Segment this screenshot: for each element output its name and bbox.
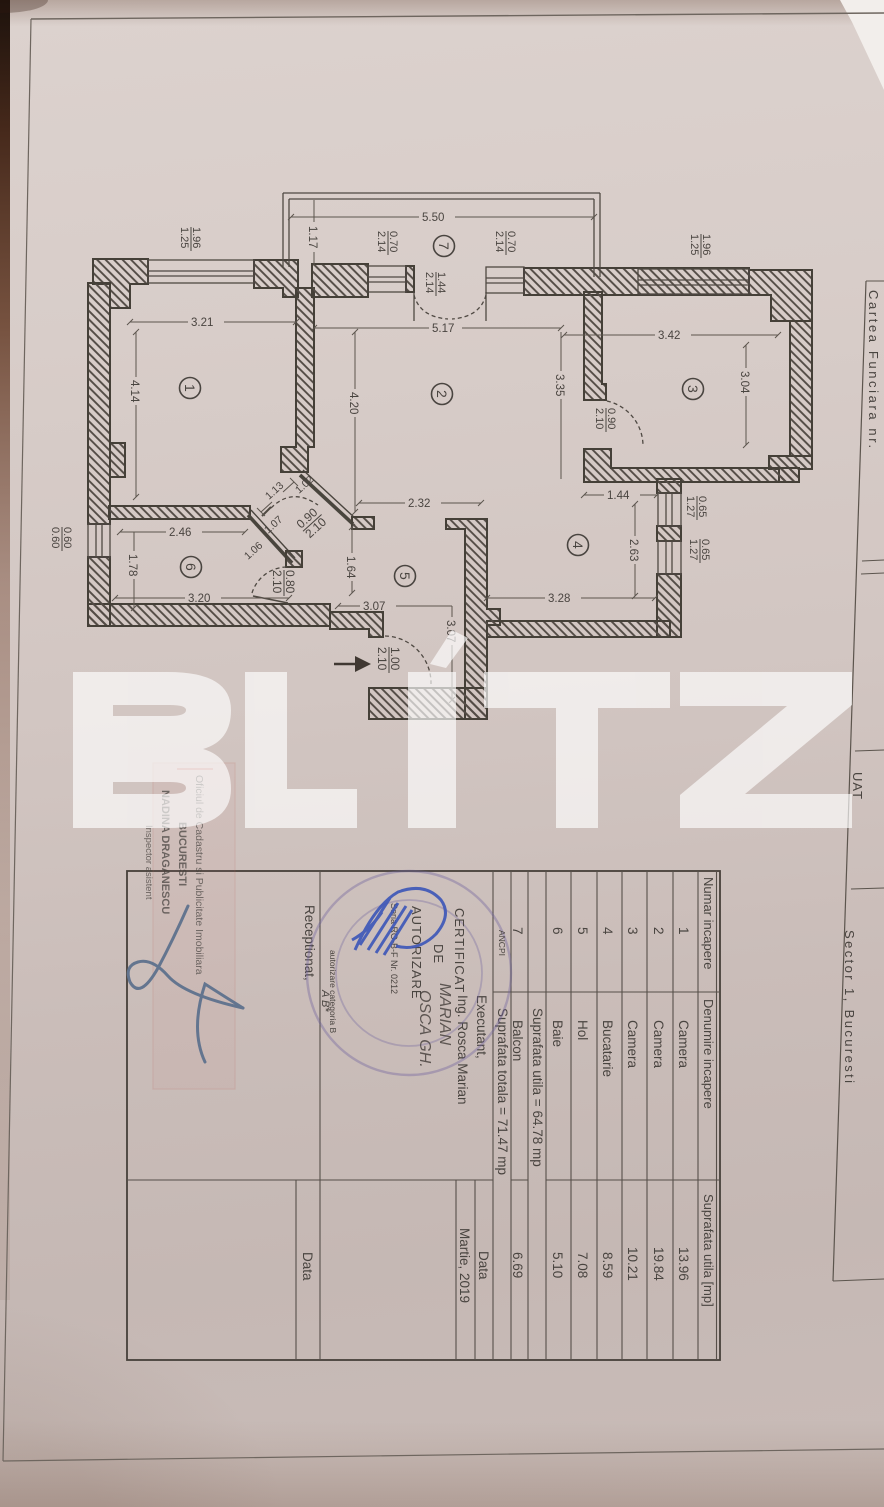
svg-text:Suprafata utila [mp]: Suprafata utila [mp] bbox=[701, 1194, 716, 1307]
svg-text:3.35: 3.35 bbox=[553, 374, 565, 396]
svg-text:0.70: 0.70 bbox=[505, 231, 517, 252]
svg-text:Bucatarie: Bucatarie bbox=[600, 1020, 615, 1077]
svg-text:Receptionat,: Receptionat, bbox=[302, 905, 317, 981]
svg-text:4.14: 4.14 bbox=[128, 380, 140, 403]
svg-text:DE: DE bbox=[431, 944, 446, 964]
svg-text:6: 6 bbox=[183, 563, 199, 571]
svg-text:2.14: 2.14 bbox=[493, 231, 505, 252]
svg-text:A B*: A B* bbox=[319, 989, 331, 1012]
svg-text:19.84: 19.84 bbox=[651, 1247, 666, 1281]
svg-text:2.46: 2.46 bbox=[169, 527, 191, 539]
svg-text:Inspector asistent: Inspector asistent bbox=[143, 825, 154, 900]
svg-text:Cartea Funciara nr.: Cartea Funciara nr. bbox=[866, 290, 881, 451]
svg-text:2: 2 bbox=[651, 927, 666, 935]
svg-text:0.65: 0.65 bbox=[696, 496, 708, 517]
svg-text:13.96: 13.96 bbox=[676, 1247, 691, 1281]
svg-text:2.10: 2.10 bbox=[593, 408, 605, 429]
svg-text:Baie: Baie bbox=[550, 1020, 565, 1047]
svg-text:0.65: 0.65 bbox=[699, 539, 711, 560]
svg-text:3.07: 3.07 bbox=[363, 601, 385, 613]
svg-text:0.90: 0.90 bbox=[605, 408, 617, 429]
svg-text:7: 7 bbox=[436, 242, 452, 250]
svg-text:2.10: 2.10 bbox=[270, 570, 284, 594]
svg-text:MARIAN: MARIAN bbox=[436, 983, 453, 1046]
svg-text:1.17: 1.17 bbox=[306, 226, 318, 248]
svg-text:1.96: 1.96 bbox=[190, 227, 202, 248]
svg-text:Sector 1, Bucuresti: Sector 1, Bucuresti bbox=[842, 930, 857, 1085]
svg-text:1.25: 1.25 bbox=[178, 227, 190, 248]
svg-text:0.60: 0.60 bbox=[49, 527, 61, 548]
svg-text:2.14: 2.14 bbox=[375, 231, 387, 252]
svg-text:1: 1 bbox=[676, 927, 691, 935]
svg-text:5.50: 5.50 bbox=[422, 212, 444, 224]
svg-text:3.42: 3.42 bbox=[658, 330, 680, 342]
svg-text:1.96: 1.96 bbox=[700, 234, 712, 255]
svg-text:BUCURESTI: BUCURESTI bbox=[176, 822, 188, 886]
svg-text:2.14: 2.14 bbox=[423, 272, 435, 293]
svg-text:5.17: 5.17 bbox=[432, 323, 454, 335]
svg-text:4: 4 bbox=[600, 927, 615, 935]
svg-text:8.59: 8.59 bbox=[600, 1252, 615, 1278]
svg-text:3.28: 3.28 bbox=[548, 593, 570, 605]
svg-text:Ing. Rosca Marian: Ing. Rosca Marian bbox=[455, 995, 470, 1105]
svg-text:0.80: 0.80 bbox=[283, 570, 297, 594]
svg-text:10.21: 10.21 bbox=[625, 1247, 640, 1281]
svg-text:2: 2 bbox=[434, 390, 450, 398]
svg-text:3: 3 bbox=[625, 927, 640, 935]
svg-text:1.25: 1.25 bbox=[688, 234, 700, 255]
svg-text:OSCA GH.: OSCA GH. bbox=[416, 990, 433, 1068]
svg-text:3.20: 3.20 bbox=[188, 593, 210, 605]
svg-text:1.78: 1.78 bbox=[126, 554, 138, 576]
svg-text:5: 5 bbox=[397, 572, 413, 580]
svg-text:2.10: 2.10 bbox=[375, 647, 389, 671]
svg-text:5.10: 5.10 bbox=[550, 1252, 565, 1278]
svg-text:Denumire incapere: Denumire incapere bbox=[701, 999, 716, 1109]
svg-text:7: 7 bbox=[510, 927, 525, 935]
svg-text:1.00: 1.00 bbox=[388, 647, 402, 671]
svg-text:0.70: 0.70 bbox=[387, 231, 399, 252]
svg-text:ANCPI: ANCPI bbox=[497, 930, 507, 956]
svg-text:UAT: UAT bbox=[850, 772, 865, 800]
svg-text:1.44: 1.44 bbox=[435, 272, 447, 293]
svg-text:1.02: 1.02 bbox=[293, 474, 316, 497]
svg-text:1.27: 1.27 bbox=[687, 539, 699, 560]
svg-text:2.32: 2.32 bbox=[408, 498, 430, 510]
svg-text:1.06: 1.06 bbox=[242, 540, 265, 563]
svg-text:Numar incapere: Numar incapere bbox=[701, 877, 716, 970]
svg-text:6: 6 bbox=[550, 927, 565, 935]
svg-text:5: 5 bbox=[575, 927, 590, 935]
svg-text:Martie, 2019: Martie, 2019 bbox=[457, 1228, 472, 1303]
svg-text:Data: Data bbox=[476, 1251, 491, 1280]
svg-text:2.63: 2.63 bbox=[627, 539, 639, 561]
svg-text:1: 1 bbox=[182, 384, 198, 392]
svg-text:4: 4 bbox=[570, 541, 586, 549]
svg-text:Suprafata utila = 64.78 mp: Suprafata utila = 64.78 mp bbox=[530, 1008, 545, 1167]
svg-text:Data: Data bbox=[300, 1252, 315, 1281]
svg-text:4.20: 4.20 bbox=[347, 392, 359, 414]
svg-text:7.08: 7.08 bbox=[575, 1252, 590, 1278]
svg-text:3.21: 3.21 bbox=[191, 317, 213, 329]
svg-text:Camera: Camera bbox=[625, 1020, 640, 1069]
svg-text:Hol: Hol bbox=[575, 1020, 590, 1040]
svg-text:CERTIFICAT: CERTIFICAT bbox=[452, 908, 467, 993]
svg-text:1.27: 1.27 bbox=[684, 496, 696, 517]
svg-text:3: 3 bbox=[685, 385, 701, 393]
svg-text:6.69: 6.69 bbox=[510, 1252, 525, 1278]
svg-text:3.04: 3.04 bbox=[738, 371, 750, 394]
svg-text:1.44: 1.44 bbox=[607, 490, 630, 502]
svg-text:Suprafata totala = 71.47 mp: Suprafata totala = 71.47 mp bbox=[495, 1008, 510, 1175]
svg-text:0.60: 0.60 bbox=[61, 527, 73, 548]
svg-text:Camera: Camera bbox=[676, 1020, 691, 1069]
svg-text:1.64: 1.64 bbox=[344, 556, 356, 579]
svg-text:AUTORIZARE: AUTORIZARE bbox=[409, 906, 424, 1000]
svg-text:Balcon: Balcon bbox=[510, 1020, 525, 1061]
svg-text:Camera: Camera bbox=[651, 1020, 666, 1069]
